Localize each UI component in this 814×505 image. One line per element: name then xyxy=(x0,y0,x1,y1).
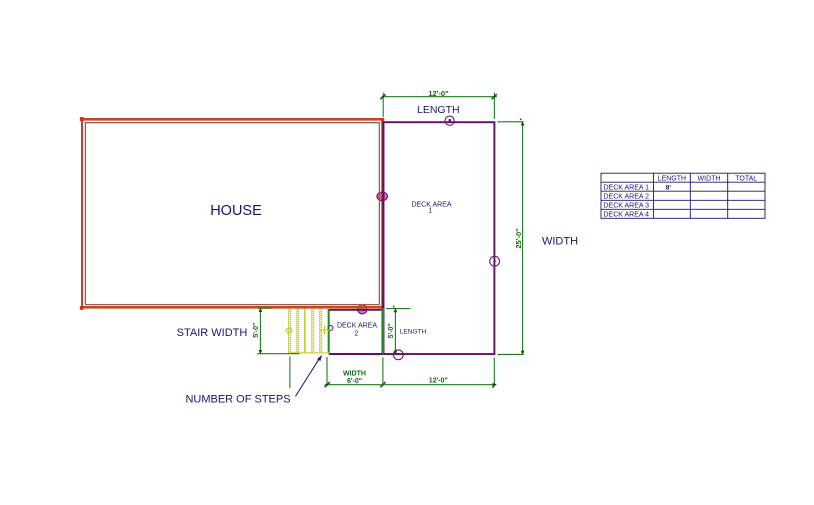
svg-text:DECK AREA 1: DECK AREA 1 xyxy=(604,185,650,192)
svg-text:WIDTH: WIDTH xyxy=(698,176,721,183)
svg-text:6'-0": 6'-0" xyxy=(347,378,362,385)
svg-text:DECK AREA: DECK AREA xyxy=(337,323,377,330)
svg-text:DECK AREA 3: DECK AREA 3 xyxy=(604,203,650,210)
svg-text:DECK AREA 2: DECK AREA 2 xyxy=(604,194,650,201)
svg-text:25'-0": 25'-0" xyxy=(514,228,523,249)
svg-text:2: 2 xyxy=(354,331,358,338)
svg-text:12'-0": 12'-0" xyxy=(429,377,448,384)
svg-text:WIDTH: WIDTH xyxy=(542,235,578,247)
svg-text:WIDTH: WIDTH xyxy=(343,370,366,377)
svg-text:1: 1 xyxy=(429,208,433,215)
svg-text:DECK AREA 4: DECK AREA 4 xyxy=(604,212,650,219)
svg-text:5'-0": 5'-0" xyxy=(388,323,395,338)
svg-text:LENGTH: LENGTH xyxy=(658,176,686,183)
svg-text:HOUSE: HOUSE xyxy=(210,203,262,219)
svg-text:5'-0": 5'-0" xyxy=(253,323,260,338)
svg-text:TOTAL: TOTAL xyxy=(735,176,757,183)
svg-text:LENGTH: LENGTH xyxy=(400,329,427,336)
svg-text:NUMBER OF STEPS: NUMBER OF STEPS xyxy=(185,394,290,406)
svg-text:LENGTH: LENGTH xyxy=(417,104,460,116)
svg-text:12'-0": 12'-0" xyxy=(428,89,449,98)
svg-text:8': 8' xyxy=(666,184,672,191)
svg-text:STAIR WIDTH: STAIR WIDTH xyxy=(177,327,248,339)
